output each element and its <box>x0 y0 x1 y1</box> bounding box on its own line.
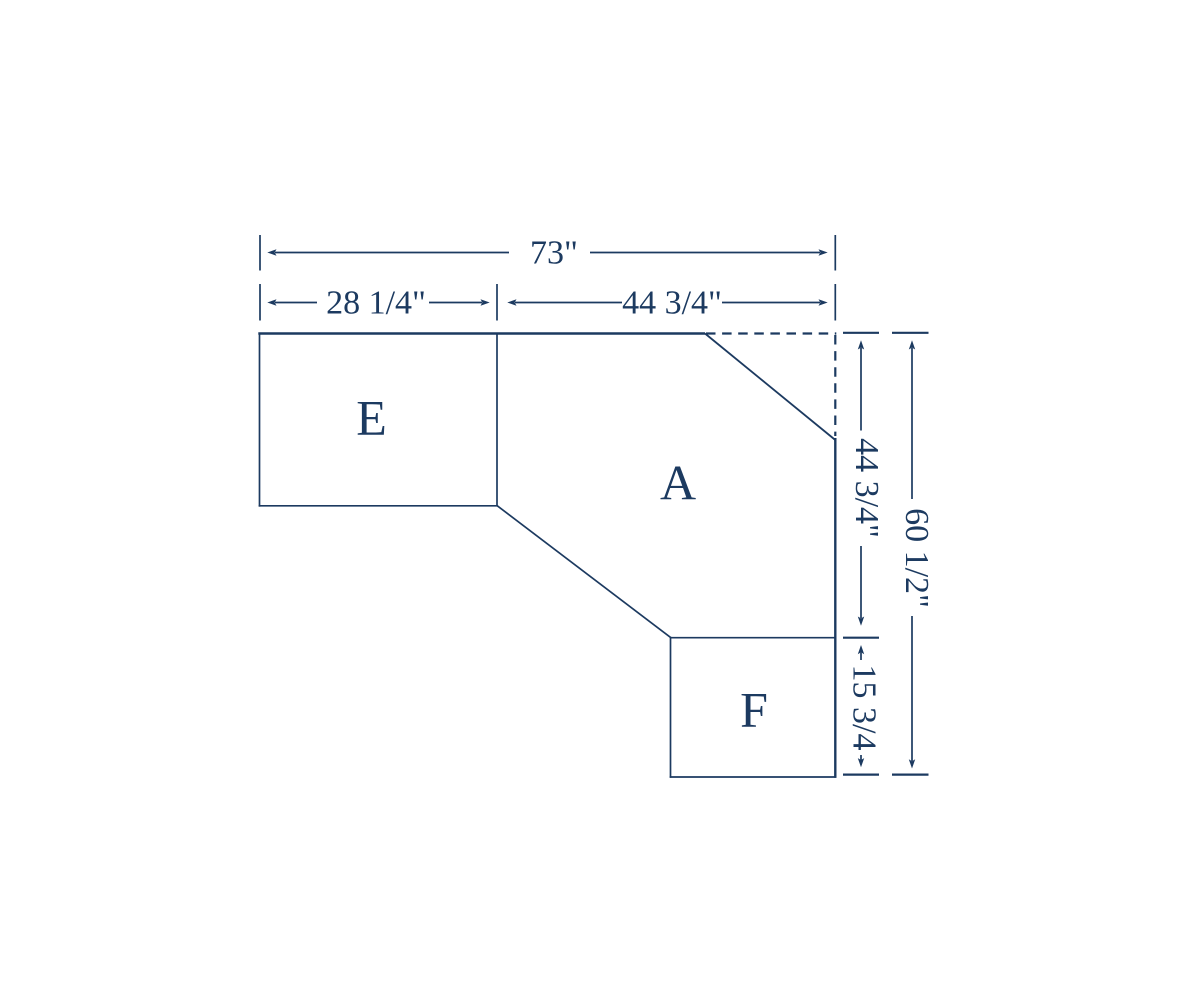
svg-text:60 1/2": 60 1/2" <box>898 508 935 608</box>
svg-text:A: A <box>660 455 696 511</box>
svg-text:F: F <box>740 682 768 738</box>
svg-text:44 3/4": 44 3/4" <box>848 438 885 538</box>
svg-text:28 1/4": 28 1/4" <box>326 285 426 322</box>
svg-text:15 3/4: 15 3/4 <box>846 665 883 751</box>
svg-text:73": 73" <box>530 235 578 272</box>
svg-text:E: E <box>356 390 387 446</box>
svg-text:44 3/4": 44 3/4" <box>622 285 722 322</box>
